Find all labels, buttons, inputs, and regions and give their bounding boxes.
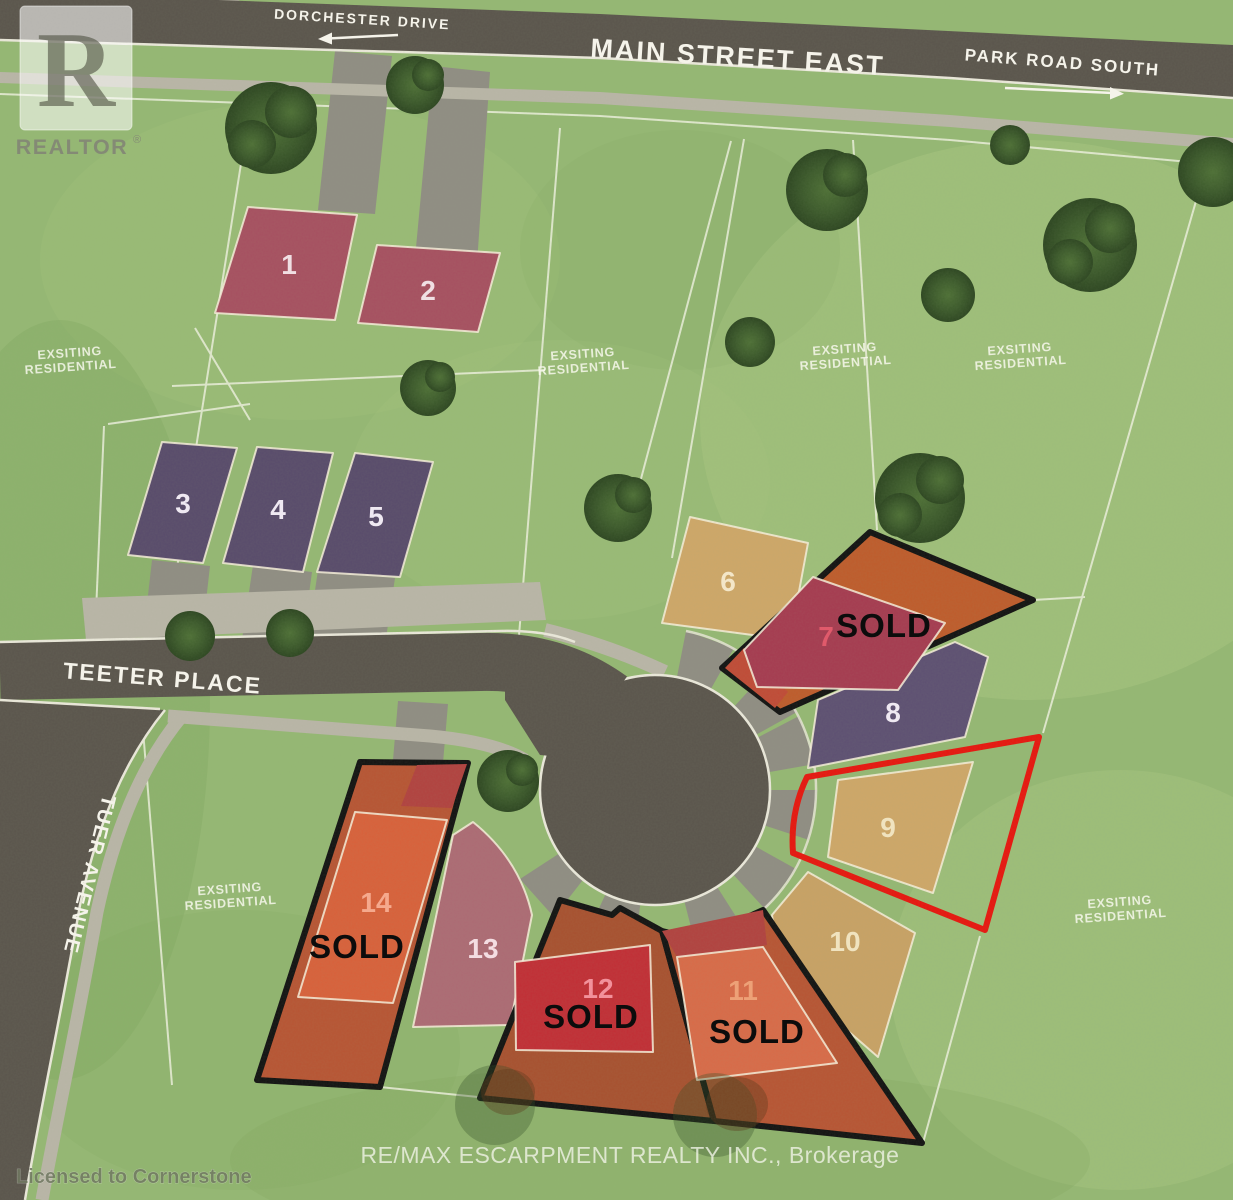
lot-2-number: 2 [420,275,436,306]
registered-mark: ® [133,134,141,146]
lot-7-number: 7 [818,621,834,652]
sold-label-lot-12: SOLD [543,998,639,1035]
lot-11-number: 11 [728,975,758,1006]
lot-1-number: 1 [281,249,297,280]
license-watermark: Licensed to Cornerstone [16,1166,252,1188]
realtor-logo: R REALTOR ® [16,6,141,159]
lot-9-number: 9 [880,812,896,843]
lot-13-number: 13 [467,933,498,964]
lot-5-number: 5 [368,501,384,532]
lot-10-number: 10 [829,926,860,957]
sold-label-lot-11: SOLD [709,1013,805,1050]
site-plan-map: MAIN STREET EAST DORCHESTER DRIVE PARK R… [0,0,1233,1200]
lot-3-number: 3 [175,488,191,519]
lot-8-number: 8 [885,697,901,728]
lot-6-number: 6 [720,566,736,597]
realtor-logo-r: R [37,11,116,130]
realtor-logo-text: REALTOR [16,135,128,159]
lot-14-number: 14 [360,887,392,918]
sold-label-lot-14: SOLD [309,928,405,965]
brokerage-watermark: RE/MAX ESCARPMENT REALTY INC., Brokerage [361,1142,900,1168]
sold-label-lot-7: SOLD [836,607,932,644]
lot-4-number: 4 [270,494,286,525]
map-canvas: MAIN STREET EAST DORCHESTER DRIVE PARK R… [0,0,1233,1200]
